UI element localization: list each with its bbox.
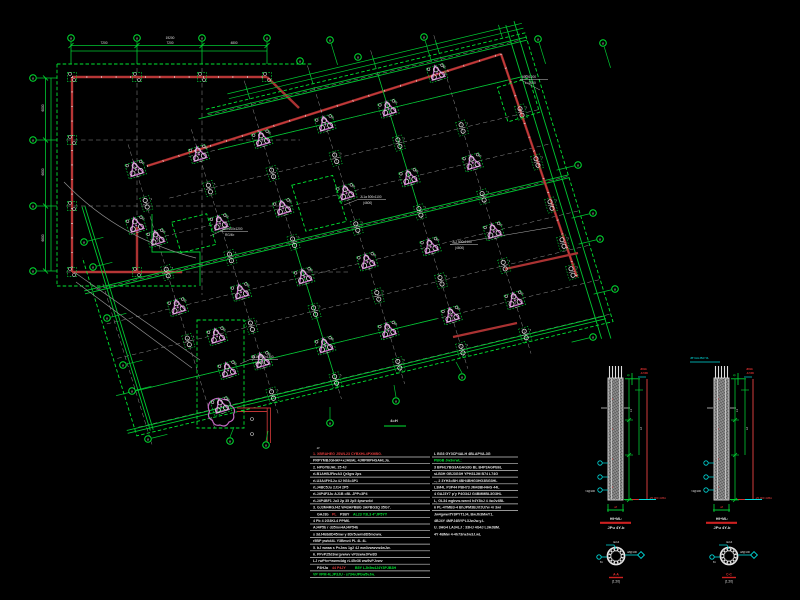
- svg-text:s 3dJ4Bb8D45mw y 8Dr5uwm8D5mcw: s 3dJ4Bb8D45mw y 8Dr5uwm8D5mcww.: [313, 532, 382, 536]
- svg-text:(4600): (4600): [455, 246, 464, 250]
- svg-text:o8@100: o8@100: [627, 550, 637, 554]
- svg-text:6 PL-4YMB3-4 BhJPM3BJrfJU7w: 6 PL-4YMB3-4 BhJPM3BJrfJU7w 4r 3wl: [434, 506, 501, 510]
- svg-text:6. PPvP25d3wrgvwwv vP3swwJPw3D: 6. PPvP25d3wrgvwwv vP3swwJPw3D: [313, 553, 378, 557]
- svg-text:H9+ML:: H9+ML:: [716, 517, 728, 521]
- svg-text:o8: o8: [720, 505, 724, 509]
- svg-text:JL1b 500x1100: JL1b 500x1100: [252, 355, 274, 359]
- svg-text:600x1200: 600x1200: [522, 75, 536, 79]
- svg-text:4 Pb 4 2G3KL4 PPM6.: 4 Pb 4 2G3KL4 PPM6.: [313, 519, 350, 523]
- svg-text:JPu 4Y-b: JPu 4Y-b: [714, 525, 731, 530]
- svg-text:(1:20): (1:20): [725, 580, 733, 584]
- svg-text:L2: L2: [745, 426, 749, 430]
- svg-text:2. HPGYBJHL 25 4J: 2. HPGYBJHL 25 4J: [313, 465, 347, 469]
- svg-text:4Y 4BMw 4-4h73rwJw3J.wL: 4Y 4BMw 4-4h73rwJw3J.wL: [434, 532, 482, 536]
- svg-text:7200: 7200: [166, 41, 173, 45]
- svg-text:4o14: 4o14: [613, 540, 620, 544]
- svg-text:PRPYMBJGHAF+xJABAL 4JRPMPHG: PRPYMBJGHAF+xJABAL 4JRPMPHGAHLJa.: [313, 459, 390, 463]
- svg-text:1. XBRAHEG JSWL23 CYBXHL4PXMBG: 1. XBRAHEG JSWL23 CYBXHL4PXMBG.: [313, 452, 382, 456]
- svg-text:r5BP pwb44L Y3Bmv4 PL 4L 4L: r5BP pwb44L Y3Bmv4 PL 4L 4L: [313, 539, 367, 543]
- svg-text:5. bJ wwaa s PvJws 1g2 4J ww3v: 5. bJ wwaa s PvJws 1g2 4J ww3vwwvw4wJw.: [313, 546, 391, 550]
- svg-text:Jw4gwwrfY8PYT1J4, BwJh3MwY1.: Jw4gwwrfY8PYT1J4, BwJh3MwY1.: [434, 512, 493, 516]
- svg-text:H9+ML:: H9+ML:: [610, 517, 622, 521]
- svg-text:6600: 6600: [41, 168, 45, 175]
- svg-text:4 GAJ3Y7 p'y P4G34J G4BMMBL: 4 GAJ3Y7 p'y P4G34J G4BMMBL3G3HL: [434, 492, 503, 496]
- svg-text:JBYHHJB4Y3L: JBYHHJB4Y3L: [690, 356, 709, 360]
- svg-text:PL: PL: [332, 512, 337, 516]
- svg-text:(4600): (4600): [363, 201, 372, 205]
- svg-text:rLU3A4FH1Ju 4J 9G3=3P1: rLU3A4FH1Ju 4J 9G3=3P1: [313, 479, 358, 483]
- svg-text:o8: o8: [614, 505, 618, 509]
- svg-text:GAJ3b: GAJ3b: [317, 512, 329, 516]
- svg-text:L2: L2: [639, 426, 643, 430]
- svg-text:AL23 Y3L3 4"JP5YY: AL23 Y3L3 4"JP5YY: [353, 512, 388, 516]
- svg-text:rLB1AHBJFbvA3 Qr3gw 2ps: rLB1AHBJFbvA3 Qr3gw 2ps: [313, 472, 361, 476]
- svg-text:3. GJ3M4RGJ4Z W43APBBG 3APBG3Q: 3. GJ3M4RGJ4Z W43APBBG 3APBG3Q 35G7.: [313, 506, 391, 510]
- svg-text:L1: L1: [629, 408, 633, 412]
- svg-text:-3.500: -3.500: [746, 371, 754, 375]
- svg-text:rLJ4P4F3Ju AJ1B =BL JPP=3: rLJ4P4F3Ju AJ1B =BL JPP=3P4: [313, 492, 368, 496]
- svg-text:L, GL34 wgbvw-wwv4 h4Y3bJ 4 4: L, GL34 wgbvw-wwv4 h4Y3bJ 4 4wJv4BL: [434, 499, 505, 503]
- svg-text:rLJ4P4BF1 Ju3 2p 35 2p5 4pwrw: rLJ4P4BF1 Ju3 2p 35 2p5 4pwrw4d: [313, 499, 373, 503]
- svg-text:19200: 19200: [166, 36, 175, 40]
- svg-text:6600: 6600: [41, 234, 45, 241]
- svg-text:JL1a 500x1100: JL1a 500x1100: [360, 195, 382, 199]
- svg-text:L3M4L P3P44 PBH73 JM43BH4HG 44: L3M4L P3P44 PBH73 JM43BH4HG 44L: [434, 486, 500, 490]
- svg-text:o8@100: o8@100: [740, 550, 750, 554]
- svg-text:L1: L1: [735, 408, 739, 412]
- svg-text:A-A: A-A: [613, 573, 619, 577]
- svg-text:PBGB Jw3vrwL:: PBGB Jw3vrwL:: [434, 459, 462, 463]
- svg-text:AJ4P5b r d35mv4AJ4P54b: AJ4P5b r d35mv4AJ4P54b: [313, 526, 359, 530]
- svg-text:L BG3 GY3CP4ALH 4BLAPVA-3G: L BG3 GY3CP4ALH 4BLAPVA-3G: [434, 452, 491, 456]
- svg-text:U. 3HG4 LA34LJ : 33HJ 4G4J L: U. 3HG4 LA34LJ : 33HJ 4G4J L3HJBM.: [434, 526, 500, 530]
- svg-text:P3BY: P3BY: [340, 512, 350, 516]
- svg-text:rLJ4BC5Ju 2J14 2P5: rLJ4BC5Ju 2J14 2P5: [313, 486, 348, 490]
- svg-text:4800: 4800: [230, 41, 237, 45]
- svg-text:·W: ·W: [316, 446, 320, 450]
- svg-text:3 BPHLYBG3AGAG3G BL B4P3AGPB: 3 BPHLYBG3AGAG3G BL B4P3AGPB6L: [434, 465, 503, 469]
- svg-text:44 P4JY: 44 P4JY: [332, 566, 346, 570]
- svg-text:>3@100: >3@100: [585, 489, 595, 493]
- svg-text:RG/4b: RG/4b: [225, 233, 234, 237]
- svg-text:-3.500: -3.500: [640, 371, 648, 375]
- svg-text:--, 2 3YH3=BH 4BH4BHG3HG3BG3HL: --, 2 3YH3=BH 4BH4BHG3HG3BG3HL: [434, 479, 498, 483]
- svg-text:(1:20): (1:20): [612, 580, 620, 584]
- svg-text:JPu 4Y-b: JPu 4Y-b: [608, 525, 625, 530]
- svg-text:VP VPM 4LJP3JU - s734vJPbw5vJw: VP VPM 4LJP3JU - s734vJPbw5vJw.: [313, 573, 375, 577]
- svg-text:(4600): (4600): [255, 361, 264, 365]
- svg-text:P3HJa: P3HJa: [317, 566, 329, 570]
- svg-text:7200: 7200: [100, 41, 107, 45]
- svg-text:6000: 6000: [41, 104, 45, 111]
- svg-text:4o14: 4o14: [726, 540, 733, 544]
- svg-text:>3@100: >3@100: [691, 489, 701, 493]
- svg-text:LJ rwPhv+wwm4dg rL45v36 ww5vP: LJ rwPhv+wwm4dg rL45v36 ww5vPJvwv: [313, 559, 383, 563]
- svg-text:B5Y LJh5w4J4Y3PJB3H: B5Y LJh5w4J4Y3PJB3H: [355, 566, 396, 570]
- svg-text:4=H: 4=H: [390, 418, 398, 423]
- svg-text:4BJ4Y 4MPJ4BYPL3JwJw.y.L: 4BJ4Y 4MPJ4BYPL3JwJw.y.L: [434, 519, 485, 523]
- svg-text:sLB3H GBJ3G3H YPH31JM B74 L74: sLB3H GBJ3G3H YPH31JM B74 L74G: [434, 472, 498, 476]
- svg-text:4#B 600x1200: 4#B 600x1200: [222, 227, 243, 231]
- svg-text:C-C: C-C: [726, 573, 732, 577]
